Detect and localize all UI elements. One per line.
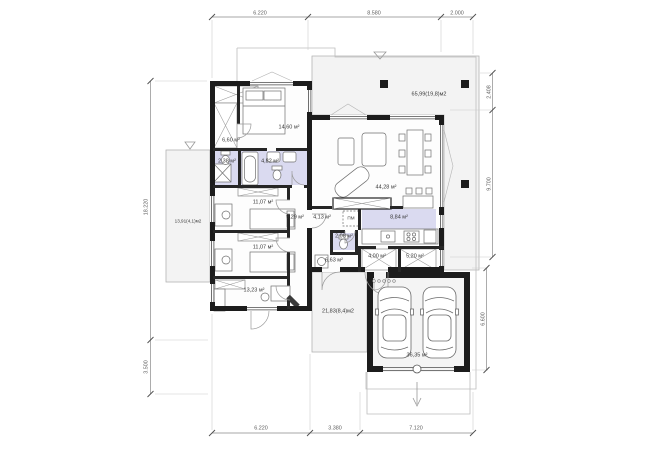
dim-label-bottom-1: 6.220 bbox=[254, 426, 268, 431]
car-left bbox=[376, 287, 414, 358]
room-label-bedroom-2: 11,07 м² bbox=[253, 200, 274, 206]
room-label-master-bedroom: 14,60 м² bbox=[279, 125, 300, 131]
dim-label-top-3: 2.000 bbox=[450, 11, 464, 16]
room-label-hallway: 4,13 м² bbox=[313, 215, 331, 221]
furniture-bedroom3 bbox=[215, 249, 295, 272]
dim-label-bottom-3: 7.120 bbox=[409, 426, 423, 431]
room-label-corridor: 9,29 м² bbox=[286, 215, 304, 221]
dim-label-top-1: 6.220 bbox=[253, 11, 267, 16]
wardrobe-office bbox=[215, 280, 245, 289]
dim-label-right-1: 2.408 bbox=[487, 85, 492, 99]
dim-label-top-2: 8.580 bbox=[367, 11, 381, 16]
room-label-terrace-left: 13,91(4,1)м2 bbox=[175, 220, 202, 225]
furniture-kitchen bbox=[362, 229, 438, 244]
room-label-pantry: 5,20 м² bbox=[406, 254, 424, 260]
dim-label-left-2: 3.500 bbox=[144, 360, 149, 374]
dim-label-left-1: 18.220 bbox=[144, 199, 149, 216]
wardrobe-bedroom2 bbox=[238, 188, 278, 196]
room-label-living-dining: 44,28 м² bbox=[376, 185, 397, 191]
car-right bbox=[421, 287, 459, 358]
wardrobe-bedroom3 bbox=[238, 233, 278, 241]
room-label-master-closet: 6,60 м² bbox=[222, 138, 240, 144]
room-label-terrace-south: 21,83(8,4)м2 bbox=[322, 309, 354, 315]
room-label-entry: 4,00 м² bbox=[368, 254, 386, 260]
room-label-utility: 6,63 м² bbox=[325, 258, 343, 264]
room-label-shower-room: 2,38 м² bbox=[218, 159, 236, 165]
dim-label-bottom-2: 3.380 bbox=[328, 426, 342, 431]
dim-label-right-2: 9.700 bbox=[487, 177, 492, 191]
room-label-office: 13,23 м² bbox=[244, 288, 265, 294]
room-label-wc: 2,08 м² bbox=[335, 234, 353, 240]
floor-plan-page: 6,60 м² 14,60 м² 2,38 м² 4,82 м² 11,07 м… bbox=[0, 0, 655, 463]
room-label-bedroom-3: 11,07 м² bbox=[253, 245, 274, 251]
appliance-label: ПМ bbox=[347, 216, 354, 221]
floor-plan-drawing bbox=[0, 0, 655, 463]
room-label-terrace-east: 65,99(19,8)м2 bbox=[412, 92, 447, 98]
tv-cabinet bbox=[333, 198, 391, 209]
room-label-kitchen: 8,84 м² bbox=[390, 215, 408, 221]
dim-label-right-3: 6.600 bbox=[481, 312, 486, 326]
room-label-bathroom: 4,82 м² bbox=[261, 159, 279, 165]
room-label-garage: 36,35 м² bbox=[407, 353, 428, 359]
